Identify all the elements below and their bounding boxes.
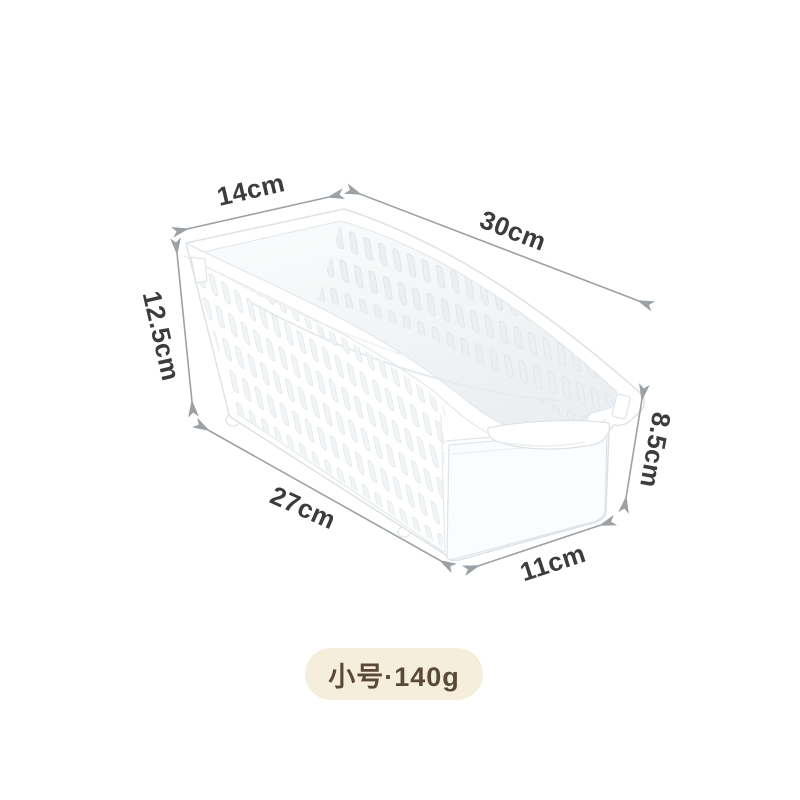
left-rail-tab (191, 257, 207, 283)
storage-basket (170, 200, 644, 570)
basket-handle (488, 421, 610, 449)
size-weight-badge: 小号·140g (305, 648, 483, 700)
arrow-back-height-12-5cm (177, 253, 192, 402)
product-dimension-diagram: 14cm 30cm 12.5cm 27cm 8.5cm 11cm 小号·140g (0, 0, 800, 800)
